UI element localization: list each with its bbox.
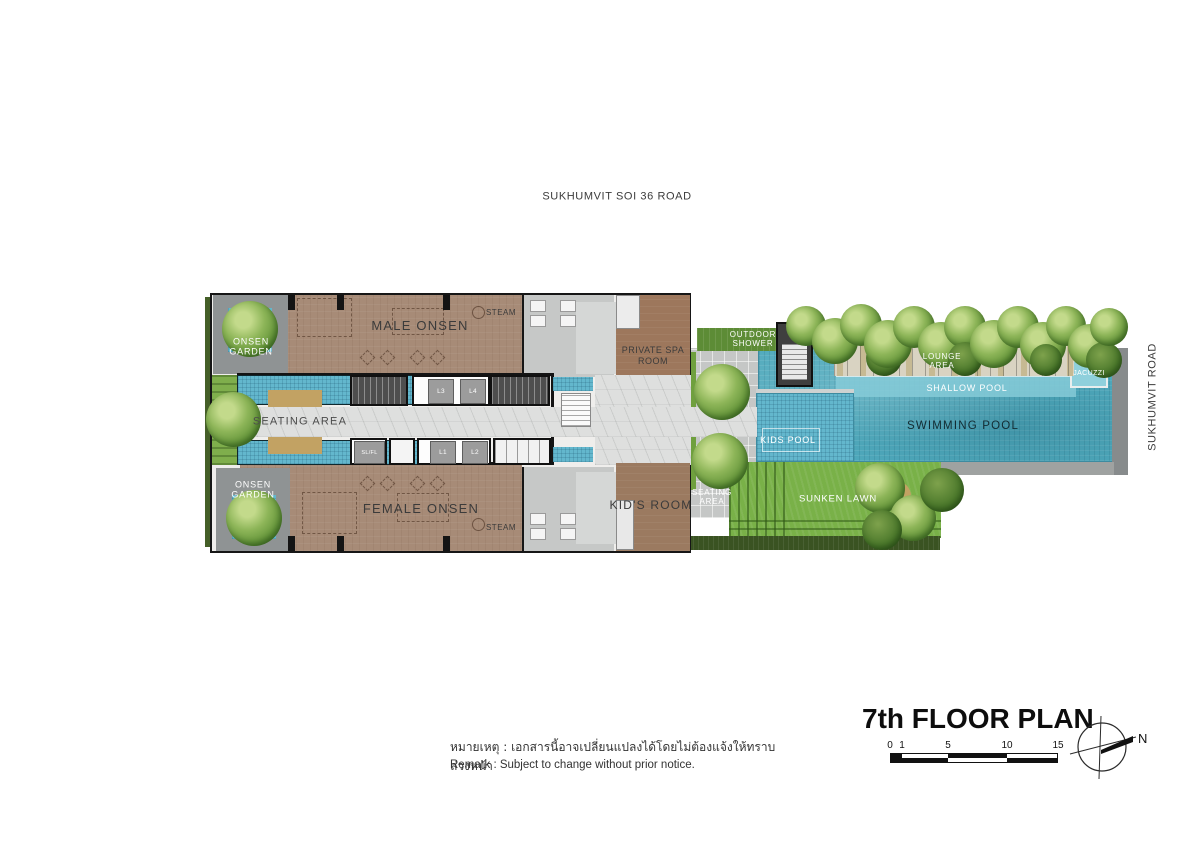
round-tub xyxy=(472,518,485,531)
service-lift: SL/FL xyxy=(354,441,385,464)
label-male-onsen: MALE ONSEN xyxy=(371,318,468,334)
label-onsen-garden-bottom: ONSEN GARDEN xyxy=(224,480,282,501)
label-jacuzzi: JACUZZI xyxy=(1073,370,1105,378)
stair-treads xyxy=(782,344,807,380)
tree xyxy=(920,468,964,512)
label-onsen-garden-top: ONSEN GARDEN xyxy=(222,337,280,358)
lift-l4: L4 xyxy=(460,379,486,404)
seating-platform xyxy=(268,437,322,454)
lobby-room xyxy=(389,438,415,465)
label-swimming-pool: SWIMMING POOL xyxy=(907,420,1019,434)
lift-l2-label: L2 xyxy=(471,449,479,456)
stair-core-left xyxy=(350,375,408,406)
stair-core-right xyxy=(490,375,550,406)
lounge-room xyxy=(576,302,616,374)
label-steam-bottom: STEAM xyxy=(486,523,516,533)
remark-english: Remark : Subject to change without prior… xyxy=(450,757,780,774)
label-seating-area-deck: SEATING AREA xyxy=(689,488,735,506)
scale-tick: 1 xyxy=(899,740,905,751)
label-lounge-area: LOUNGE AREA xyxy=(916,352,968,370)
round-tub xyxy=(472,306,485,319)
tree xyxy=(692,433,748,489)
label-shallow-pool: SHALLOW POOL xyxy=(926,383,1007,393)
spa-anteroom xyxy=(616,295,640,329)
label-seating-area: SEATING AREA xyxy=(253,415,347,428)
tree xyxy=(1090,308,1128,346)
water-feature xyxy=(553,447,593,462)
label-female-onsen: FEMALE ONSEN xyxy=(363,501,479,517)
north-label: N xyxy=(1138,731,1147,746)
road-label-right: SUKHUMVIT ROAD xyxy=(1146,343,1159,451)
page-title: 7th FLOOR PLAN xyxy=(862,703,1062,739)
wc-block xyxy=(493,438,551,465)
floor-plan-canvas: SUKHUMVIT SOI 36 ROAD SUKHUMVIT ROAD xyxy=(0,0,1200,849)
lift-l1-label: L1 xyxy=(439,449,447,456)
road-label-top: SUKHUMVIT SOI 36 ROAD xyxy=(542,190,691,203)
scale-bar-strip xyxy=(890,753,1058,763)
lift-l3-label: L3 xyxy=(437,388,445,395)
label-steam-top: STEAM xyxy=(486,308,516,318)
scale-tick: 5 xyxy=(945,740,951,751)
scale-bar: 0 1 5 10 15 xyxy=(888,740,1064,766)
lift-l2: L2 xyxy=(462,441,488,464)
label-kids-room: KID'S ROOM xyxy=(610,498,693,512)
label-sunken-lawn: SUNKEN LAWN xyxy=(799,495,877,506)
tree xyxy=(694,364,750,420)
lift-l1: L1 xyxy=(430,441,456,464)
label-kids-pool: KIDS POOL xyxy=(760,435,816,445)
lift-l4-label: L4 xyxy=(469,388,477,395)
scale-tick: 0 xyxy=(887,740,893,751)
seating-platform xyxy=(268,390,322,407)
label-outdoor-shower: OUTDOOR SHOWER xyxy=(723,330,783,348)
water-feature xyxy=(553,377,593,391)
stair-treads xyxy=(561,393,591,427)
tree xyxy=(1030,344,1062,376)
label-private-spa: PRIVATE SPA ROOM xyxy=(617,345,689,367)
tree xyxy=(862,510,902,550)
north-arrow-icon: N xyxy=(1058,700,1154,796)
scale-tick: 10 xyxy=(1001,740,1012,751)
service-lift-label: SL/FL xyxy=(361,450,377,456)
lift-l3: L3 xyxy=(428,379,454,404)
